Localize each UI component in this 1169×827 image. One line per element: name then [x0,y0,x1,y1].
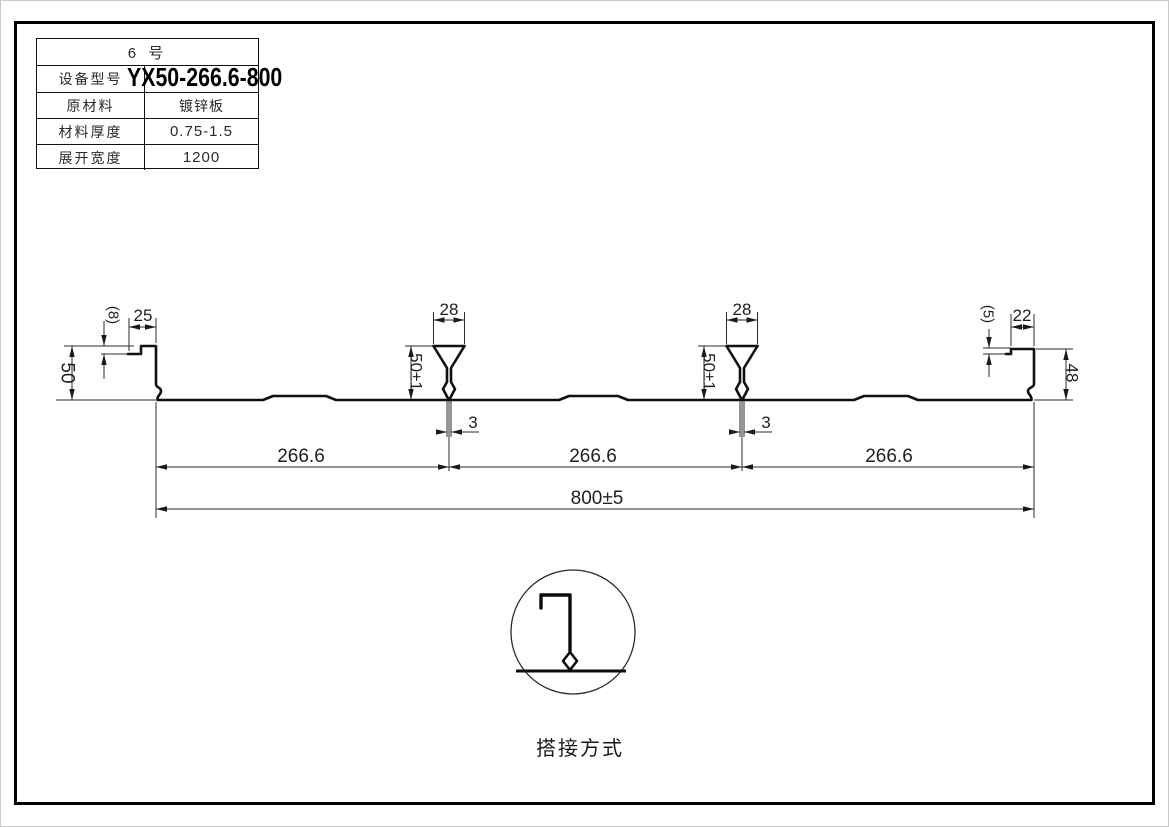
arrow [449,464,460,469]
dim-left-height: 50 [57,362,78,383]
arrow [156,464,167,469]
dim-rib1-width: 28 [440,300,459,319]
arrow [1063,349,1068,360]
model-number: YX50-266.6-800 [127,64,282,91]
dim-rib2-height: 50±1 [700,353,719,391]
dim-overall: 800±5 [571,488,624,509]
profile-drawing: 50 (8) 25 28 28 50±1 50±1 3 3 266.6 266.… [1,1,1169,827]
arrow [1023,324,1034,329]
ext-rib2-stem [740,401,744,471]
dim-arrows [69,317,1068,511]
arrow [69,389,74,400]
arrow [156,506,167,511]
arrow [101,335,106,346]
dim-rib1-height: 50±1 [407,353,426,391]
arrow [986,354,991,365]
dim-rib2-stem: 3 [761,413,770,432]
dim-right-step: (5) [980,305,997,323]
arrow [1011,324,1022,329]
ext-rib1-stem [447,401,451,471]
drawing-sheet: 6 号 设备型号 原材料 镀锌板 材料厚度 0.75-1.5 展开宽度 1200… [0,0,1169,827]
arrow [986,337,991,348]
rib-left-wall [434,346,449,399]
dimension-lines [72,320,1066,509]
dim-span-2: 266.6 [569,446,617,467]
arrow [742,464,753,469]
extension-lines [56,312,1073,518]
arrow [436,429,447,434]
arrow [438,464,449,469]
seam-diamond [563,652,577,670]
profile-outline [128,346,1034,400]
dimension-labels: 50 (8) 25 28 28 50±1 50±1 3 3 266.6 266.… [57,300,1082,509]
arrow [1023,506,1034,511]
arrow [1023,464,1034,469]
arrow [1063,389,1068,400]
rib-right-wall [743,346,758,399]
arrow [451,429,462,434]
detail-caption: 搭接方式 [500,732,660,761]
arrow [145,324,156,329]
arrow [101,354,106,365]
dim-span-3: 266.6 [865,446,913,467]
dim-right-height: 48 [1063,364,1082,383]
lap-joint-detail [511,570,635,694]
arrow [129,324,140,329]
dim-span-1: 266.6 [277,446,325,467]
dim-left-step: (8) [105,306,122,324]
dim-rib2-width: 28 [733,300,752,319]
overlap-sheet-edge [541,595,570,651]
rib-left-wall [727,346,742,399]
profile-section [128,346,1034,400]
arrow [69,346,74,357]
arrow [729,429,740,434]
dim-right-lip: 22 [1013,306,1032,325]
dim-left-lip: 25 [134,306,153,325]
detail-circle [511,570,635,694]
dim-rib1-stem: 3 [468,413,477,432]
arrow [731,464,742,469]
rib-2 [727,346,758,399]
rib-1 [434,346,465,399]
arrow [744,429,755,434]
rib-right-wall [450,346,465,399]
